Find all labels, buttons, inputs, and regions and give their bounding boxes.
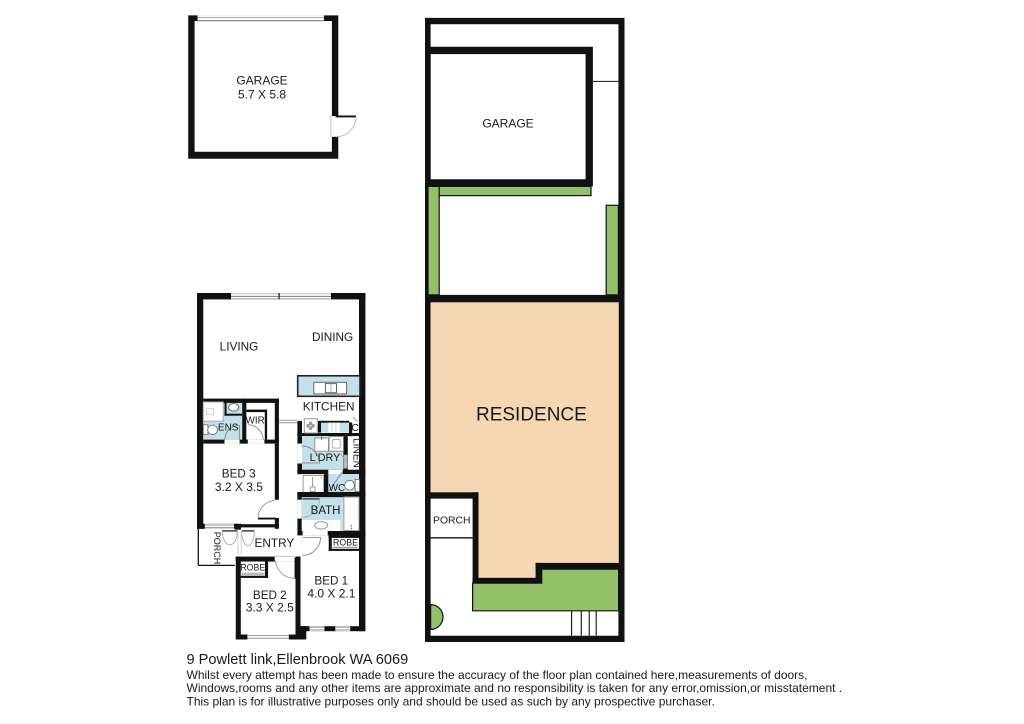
svg-text:ENTRY: ENTRY xyxy=(255,536,295,550)
svg-text:KITCHEN: KITCHEN xyxy=(303,399,355,413)
svg-text:ROBE: ROBE xyxy=(333,538,358,548)
svg-text:ENS: ENS xyxy=(218,423,239,434)
svg-text:BED 3: BED 3 xyxy=(222,468,256,481)
svg-text:GARAGE: GARAGE xyxy=(482,117,533,131)
svg-text:PORCH: PORCH xyxy=(212,532,222,565)
svg-text:This plan is for illustrative: This plan is for illustrative purposes o… xyxy=(187,695,715,709)
svg-text:PORCH: PORCH xyxy=(433,516,471,527)
svg-text:LINEN: LINEN xyxy=(351,438,362,468)
svg-text:RESIDENCE: RESIDENCE xyxy=(476,404,587,425)
svg-text:Windows,rooms and any other it: Windows,rooms and any other items are ap… xyxy=(187,681,843,695)
svg-text:WIR: WIR xyxy=(246,415,265,426)
svg-text:GARAGE: GARAGE xyxy=(236,73,287,87)
svg-text:9 Powlett link,Ellenbrook WA 6: 9 Powlett link,Ellenbrook WA 6069 xyxy=(187,652,409,668)
svg-text:4.0 X 2.1: 4.0 X 2.1 xyxy=(307,586,355,600)
svg-text:5.7 X 5.8: 5.7 X 5.8 xyxy=(238,88,286,102)
svg-text:Whilst every attempt has been: Whilst every attempt has been made to en… xyxy=(187,668,808,682)
svg-text:DINING: DINING xyxy=(312,330,353,344)
svg-text:LIVING: LIVING xyxy=(220,339,259,353)
svg-text:C: C xyxy=(351,422,359,434)
svg-text:3.3 X 2.5: 3.3 X 2.5 xyxy=(246,601,294,615)
svg-text:3.2 X 3.5: 3.2 X 3.5 xyxy=(215,480,263,494)
svg-text:BATH: BATH xyxy=(311,505,341,517)
svg-text:L'DRY: L'DRY xyxy=(310,452,341,464)
svg-text:ROBE: ROBE xyxy=(240,563,265,573)
